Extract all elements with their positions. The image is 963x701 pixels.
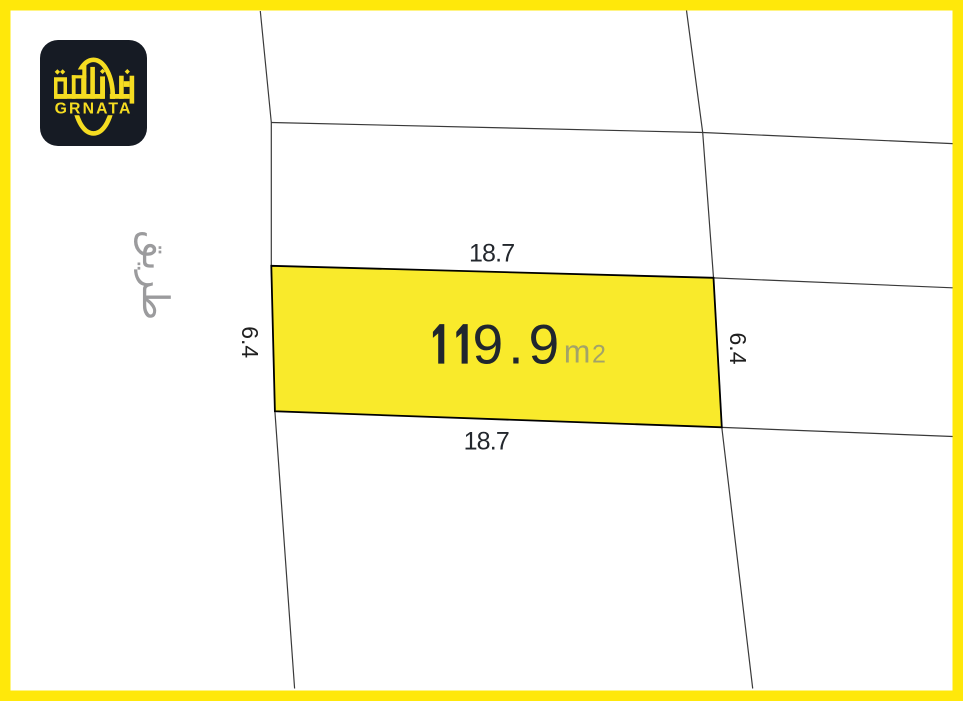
svg-text:18.7: 18.7 — [469, 239, 514, 267]
svg-text:18.7: 18.7 — [464, 428, 509, 456]
svg-text:9.9: 9.9 — [473, 314, 565, 376]
svg-text:6.4: 6.4 — [237, 326, 263, 358]
svg-text:GRNATA: GRNATA — [55, 100, 133, 117]
svg-text:6.4: 6.4 — [725, 333, 751, 365]
